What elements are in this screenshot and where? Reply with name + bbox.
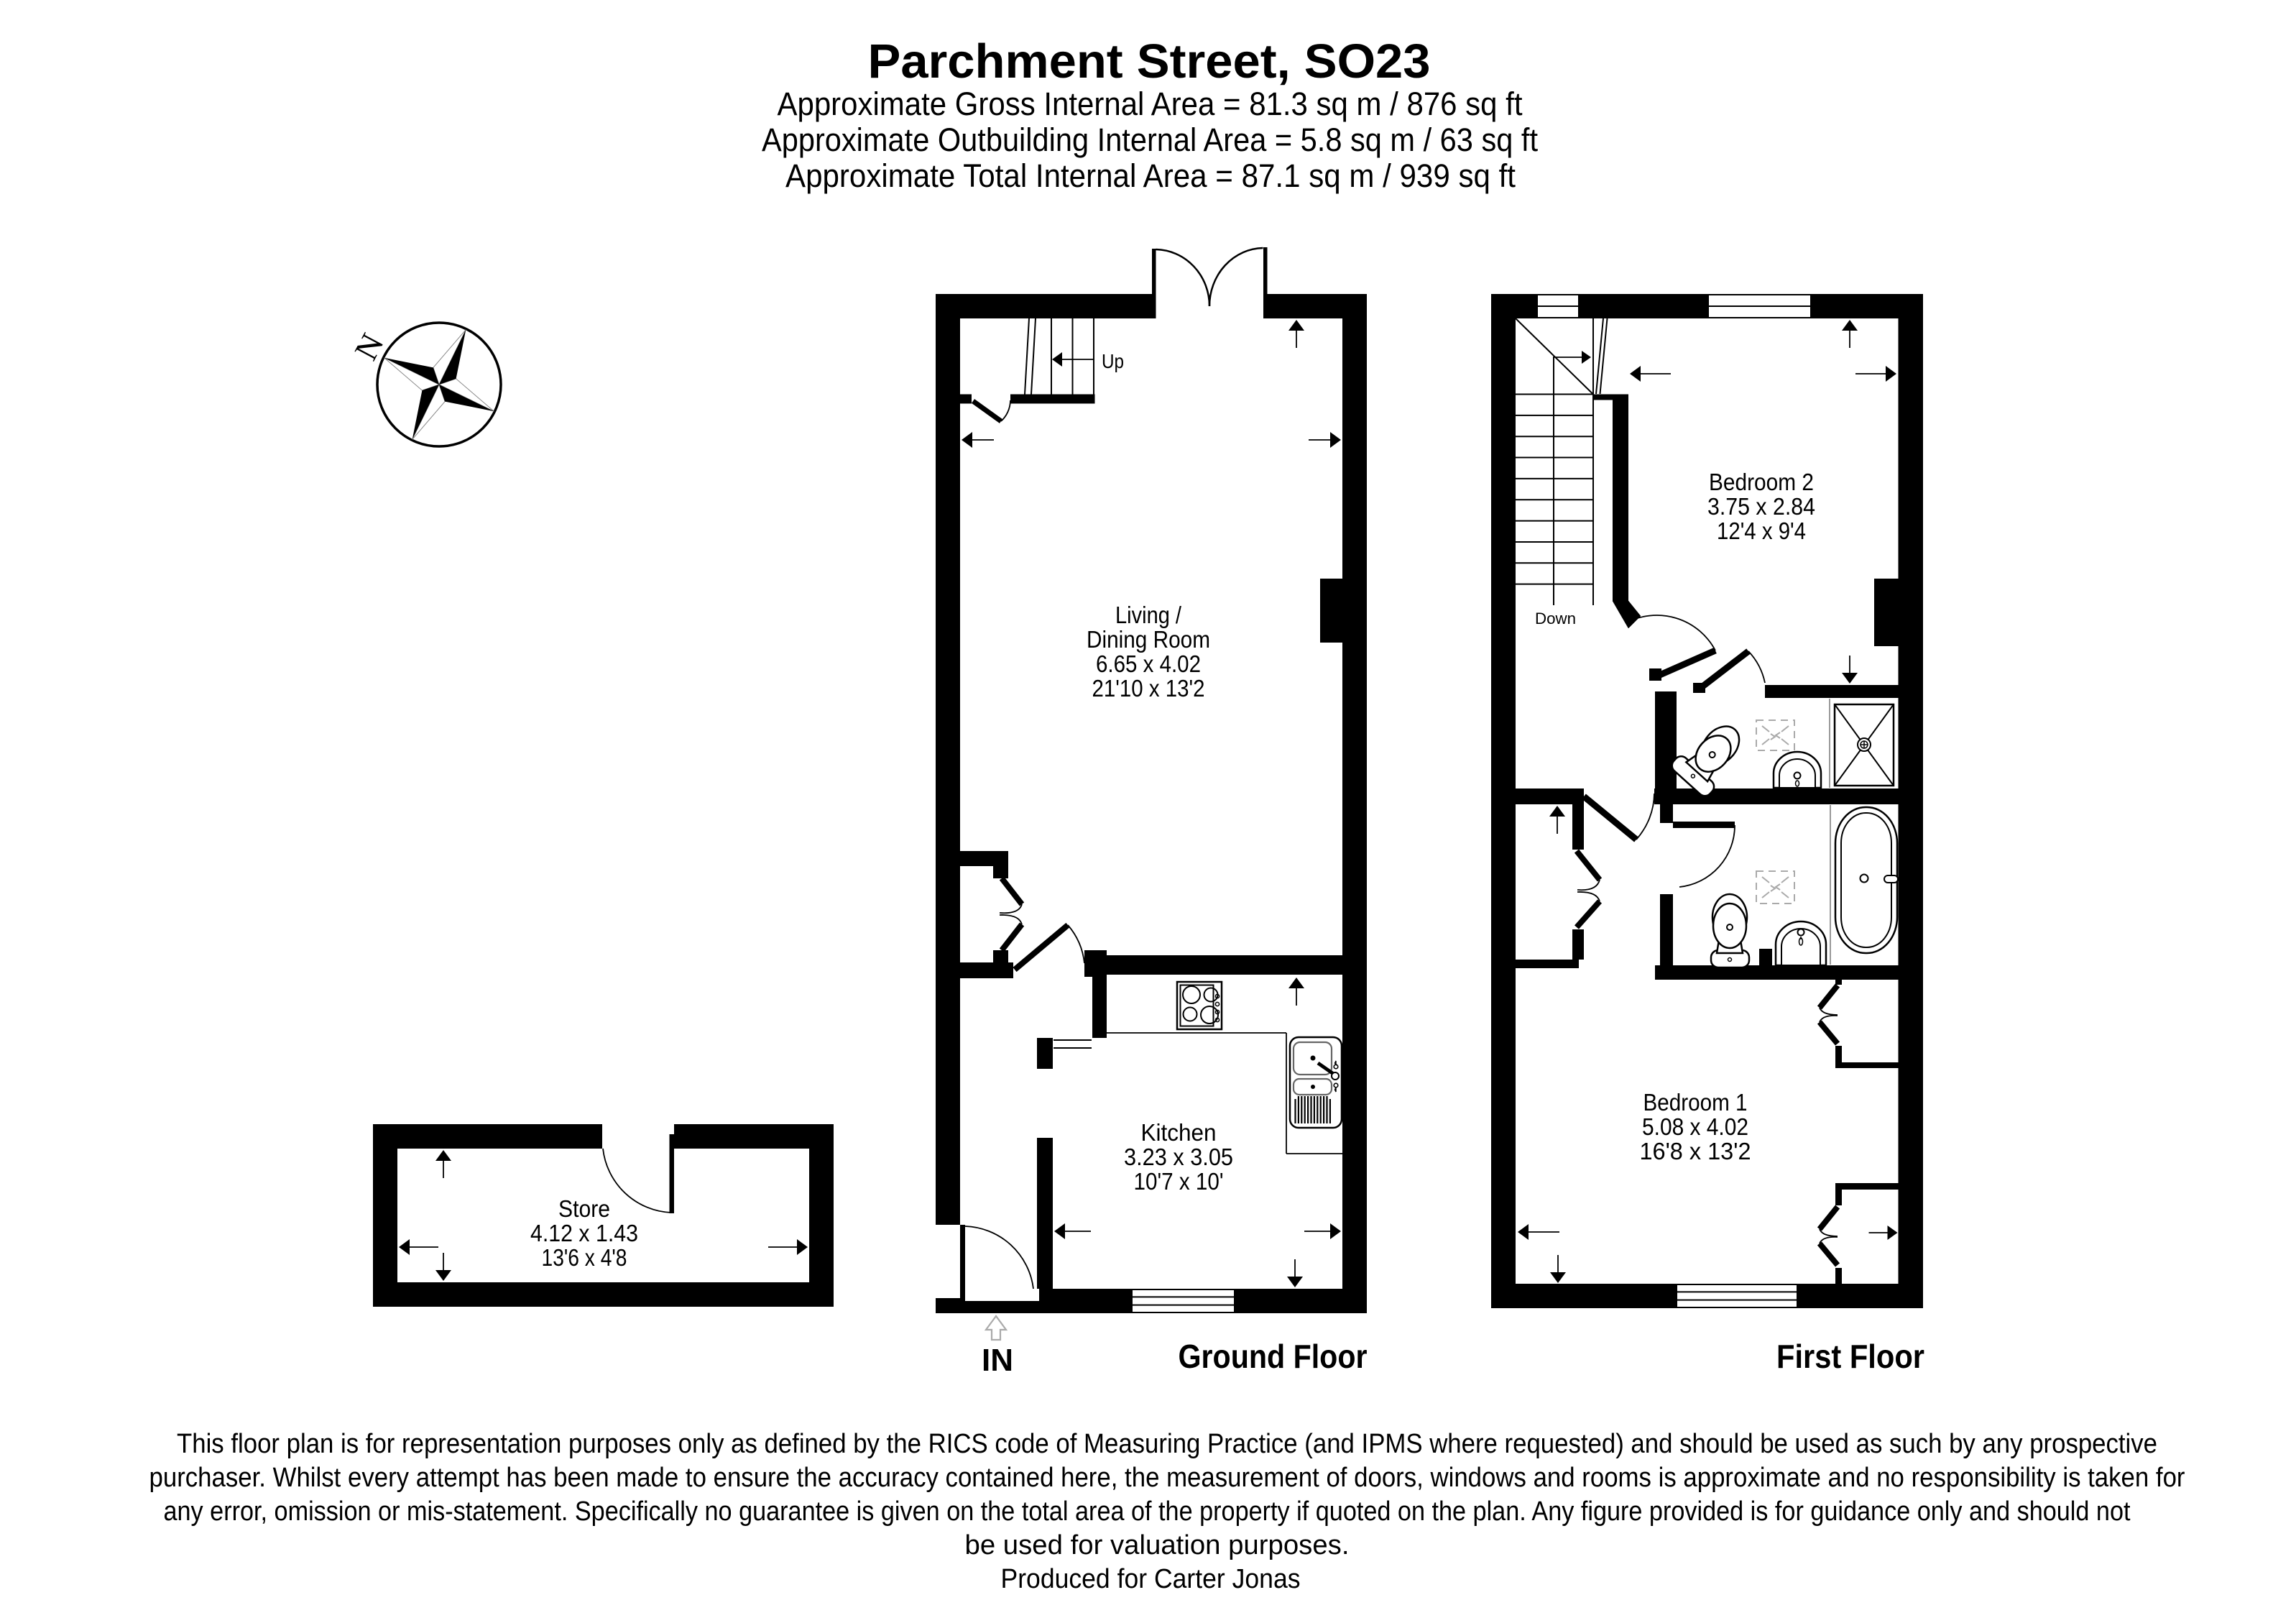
svg-text:Approximate Gross Internal Are: Approximate Gross Internal Area = 81.3 s…	[778, 86, 1523, 122]
svg-text:10'7 x 10': 10'7 x 10'	[1134, 1168, 1224, 1195]
svg-text:be used for valuation purposes: be used for valuation purposes.	[965, 1530, 1350, 1560]
svg-text:5.08 x 4.02: 5.08 x 4.02	[1642, 1113, 1748, 1140]
svg-text:Ground Floor: Ground Floor	[1179, 1338, 1368, 1375]
svg-text:First Floor: First Floor	[1776, 1338, 1924, 1375]
svg-text:6.65 x 4.02: 6.65 x 4.02	[1096, 650, 1201, 677]
svg-text:Store: Store	[558, 1195, 610, 1222]
svg-text:Kitchen: Kitchen	[1141, 1119, 1217, 1146]
svg-text:Parchment Street, SO23: Parchment Street, SO23	[868, 35, 1431, 88]
svg-text:21'10 x 13'2: 21'10 x 13'2	[1092, 675, 1205, 702]
svg-text:12'4 x 9'4: 12'4 x 9'4	[1717, 518, 1806, 544]
svg-text:Approximate Total Internal Are: Approximate Total Internal Area = 87.1 s…	[785, 157, 1516, 194]
svg-text:Approximate Outbuilding Intern: Approximate Outbuilding Internal Area = …	[762, 121, 1538, 158]
svg-text:any error, omission or mis-sta: any error, omission or mis-statement. Sp…	[164, 1496, 2131, 1527]
svg-text:purchaser. Whilst every attemp: purchaser. Whilst every attempt has been…	[149, 1463, 2185, 1493]
svg-text:Produced for Carter Jonas: Produced for Carter Jonas	[1001, 1564, 1301, 1594]
svg-text:3.23 x 3.05: 3.23 x 3.05	[1124, 1144, 1233, 1170]
svg-text:Bedroom 2: Bedroom 2	[1709, 469, 1814, 495]
svg-text:Up: Up	[1102, 350, 1124, 372]
svg-text:IN: IN	[982, 1343, 1013, 1378]
svg-text:Living /: Living /	[1115, 602, 1182, 628]
svg-text:16'8 x 13'2: 16'8 x 13'2	[1640, 1138, 1751, 1164]
svg-text:13'6 x 4'8: 13'6 x 4'8	[542, 1244, 627, 1271]
svg-text:Dining Room: Dining Room	[1087, 626, 1210, 653]
svg-text:Bedroom 1: Bedroom 1	[1643, 1089, 1748, 1116]
svg-text:3.75 x 2.84: 3.75 x 2.84	[1707, 493, 1815, 520]
svg-text:This floor plan is for represe: This floor plan is for representation pu…	[177, 1429, 2157, 1459]
svg-text:Down: Down	[1535, 610, 1576, 627]
svg-text:4.12 x 1.43: 4.12 x 1.43	[530, 1220, 638, 1246]
